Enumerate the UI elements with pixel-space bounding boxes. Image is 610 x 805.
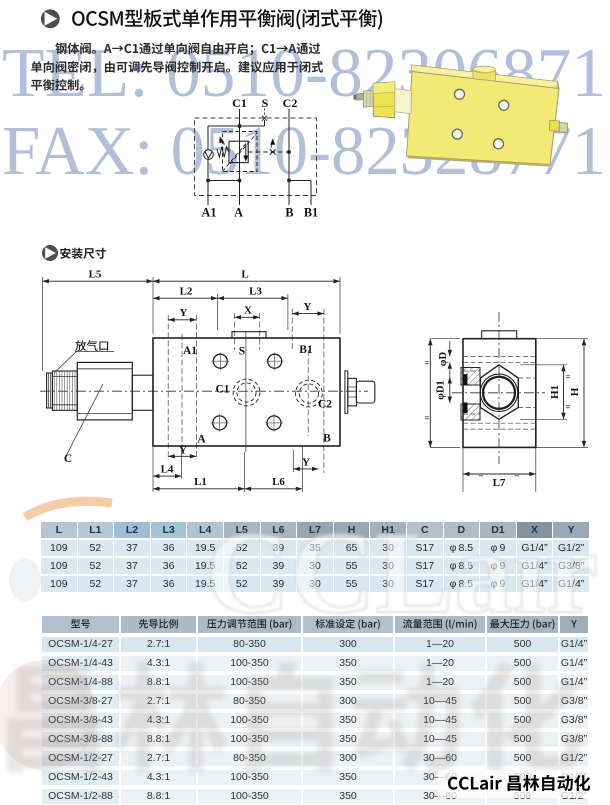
svg-text:S: S bbox=[262, 96, 269, 110]
svg-text:L2: L2 bbox=[180, 286, 193, 298]
svg-text:X: X bbox=[244, 305, 252, 317]
svg-text:L6: L6 bbox=[272, 476, 285, 488]
svg-text:=: = bbox=[514, 470, 519, 480]
svg-text:L4: L4 bbox=[161, 464, 174, 476]
svg-text:Y: Y bbox=[179, 445, 187, 457]
svg-text:=: = bbox=[565, 372, 570, 382]
svg-text:S: S bbox=[239, 346, 245, 358]
svg-text:A1: A1 bbox=[183, 345, 197, 357]
svg-text:C2: C2 bbox=[283, 96, 298, 110]
svg-text:L1: L1 bbox=[194, 476, 207, 488]
svg-text:Y: Y bbox=[302, 457, 310, 469]
svg-text:C: C bbox=[64, 453, 72, 465]
svg-text:=: = bbox=[424, 413, 429, 423]
svg-text:B: B bbox=[323, 433, 331, 445]
svg-text:Y: Y bbox=[304, 301, 312, 313]
svg-text:B1: B1 bbox=[304, 206, 318, 220]
svg-text:A1: A1 bbox=[202, 206, 217, 220]
svg-text:L: L bbox=[241, 269, 248, 281]
svg-text:φD1: φD1 bbox=[436, 380, 447, 399]
svg-text:H1: H1 bbox=[549, 385, 561, 399]
svg-text:B: B bbox=[285, 206, 293, 220]
svg-text:C1: C1 bbox=[232, 96, 247, 110]
svg-text:φD: φD bbox=[438, 352, 449, 367]
svg-text:A: A bbox=[197, 434, 206, 446]
svg-text:H: H bbox=[569, 387, 581, 396]
svg-text:C2: C2 bbox=[318, 399, 332, 411]
svg-text:=: = bbox=[424, 358, 429, 368]
svg-text:A: A bbox=[234, 206, 243, 220]
svg-text:Y: Y bbox=[180, 307, 188, 319]
svg-text:L3: L3 bbox=[249, 286, 262, 298]
svg-text:=: = bbox=[565, 402, 570, 412]
svg-text:L5: L5 bbox=[89, 269, 102, 281]
svg-text:B1: B1 bbox=[299, 344, 313, 356]
svg-text:C1: C1 bbox=[215, 384, 229, 396]
svg-text:L7: L7 bbox=[493, 477, 506, 489]
svg-text:=: = bbox=[478, 470, 483, 480]
